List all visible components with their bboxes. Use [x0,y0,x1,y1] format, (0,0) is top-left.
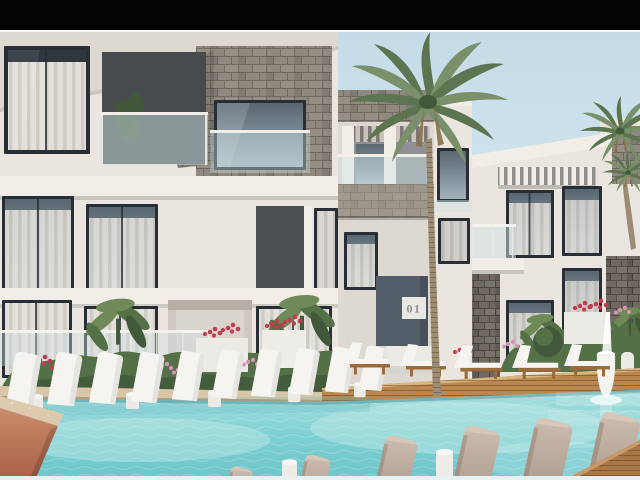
balcony-recess [256,206,312,296]
bottom-strip [0,476,640,480]
window [562,186,602,256]
window [344,232,378,290]
window [86,204,158,292]
side-table [436,449,453,480]
pergola [498,167,596,189]
unit-plaque-number: 01 [407,302,422,316]
render-canvas: 01 [0,0,640,480]
balcony [100,52,208,165]
window [210,100,310,173]
top-separator-line [0,30,640,32]
letterbox-top-bar [0,0,640,30]
balcony-glass [336,154,436,185]
unit-plaque: 01 [402,297,426,319]
window [2,196,74,292]
stone-parapet [336,184,436,220]
window [4,46,90,154]
architectural-render: 01 [0,0,640,480]
window [314,208,338,296]
white-planter [564,312,610,344]
